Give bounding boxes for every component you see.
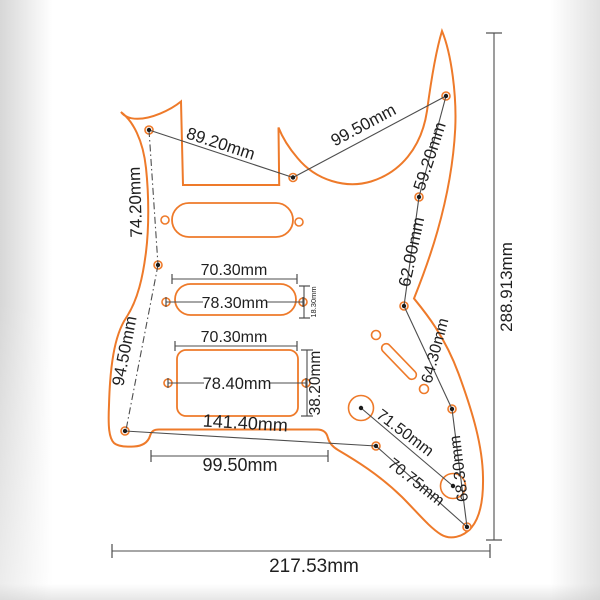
- dim-label-pocket-to-horn: 99.50mm: [328, 100, 399, 150]
- dim-label-overall-height: 288.913mm: [497, 242, 516, 332]
- endpoint-dot: [402, 304, 406, 308]
- endpoint-dot: [374, 444, 378, 448]
- endpoint-dot: [465, 525, 469, 529]
- dim-label-sc-width: 70.30mm: [201, 262, 268, 279]
- endpoint-dot: [147, 128, 151, 132]
- pickup-screw-hole: [161, 216, 169, 224]
- pickguard-diagram-canvas: 89.20mm 99.50mm 74.20mm 94.50mm 59.20mm …: [0, 0, 600, 600]
- dim-label-hb-screw-span: 78.40mm: [203, 375, 272, 393]
- endpoint-dot: [291, 175, 295, 179]
- dim-label-horn-spacing: 89.20mm: [184, 124, 257, 164]
- dim-label-upper-left-edge: 74.20mm: [125, 166, 146, 237]
- dim-label-bottom-span: 141.40mm: [202, 411, 288, 436]
- switch-hole-2: [420, 385, 429, 394]
- endpoint-dot: [417, 195, 421, 199]
- dim-label-overall-width: 217.53mm: [269, 556, 359, 577]
- dim-label-trem-width: 99.50mm: [202, 455, 277, 475]
- dim-label-sc-height: 18.30mm: [309, 286, 318, 317]
- neck-single-coil-cutout: [172, 203, 293, 237]
- pickguard-outline: [109, 31, 483, 537]
- endpoint-dot: [359, 406, 363, 410]
- pickguard-dimension-diagram: 89.20mm 99.50mm 74.20mm 94.50mm 59.20mm …: [0, 0, 600, 600]
- dim-label-hb-height: 38.20mm: [307, 351, 324, 416]
- pickup-screw-hole: [295, 218, 303, 226]
- dim-label-hb-width: 70.30mm: [201, 329, 268, 346]
- dim-label-sc-screw-span: 78.30mm: [202, 295, 269, 312]
- endpoint-dot: [123, 429, 127, 433]
- switch-hole: [372, 331, 381, 340]
- endpoint-dot: [156, 263, 160, 267]
- endpoint-dot: [444, 94, 448, 98]
- endpoint-dot: [450, 407, 454, 411]
